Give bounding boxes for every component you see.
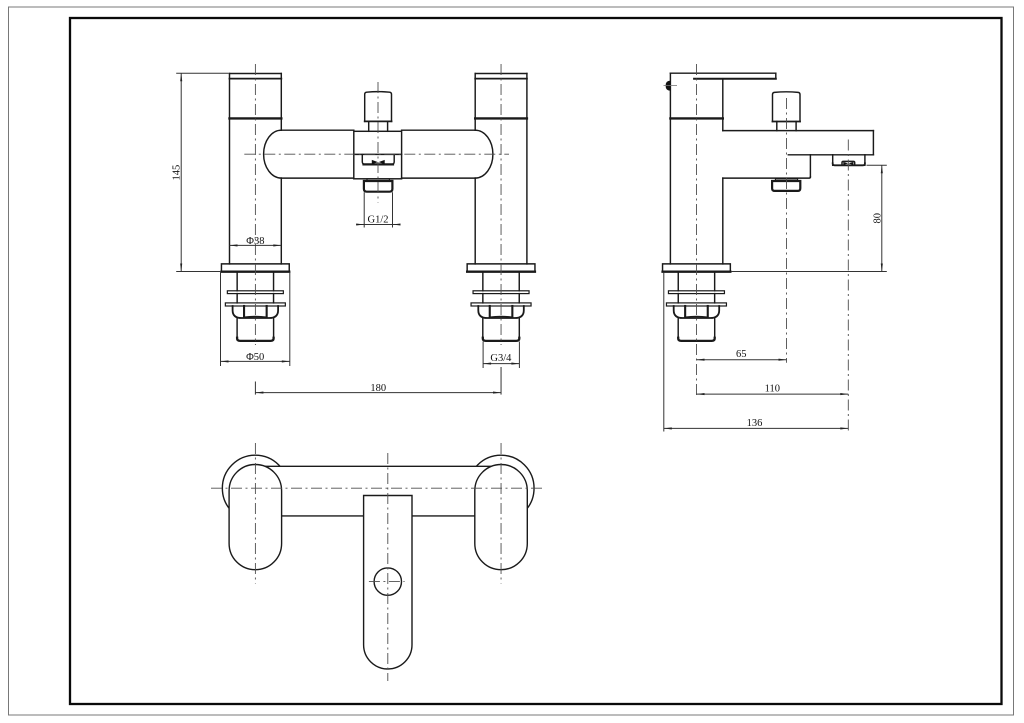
svg-text:145: 145 <box>171 165 182 181</box>
svg-text:Φ38: Φ38 <box>246 236 264 247</box>
svg-text:180: 180 <box>370 383 386 394</box>
svg-text:136: 136 <box>747 418 763 429</box>
svg-text:G1/2: G1/2 <box>368 214 389 225</box>
svg-text:65: 65 <box>736 349 747 360</box>
svg-text:G3/4: G3/4 <box>490 353 512 364</box>
svg-text:Φ50: Φ50 <box>246 352 264 363</box>
svg-text:80: 80 <box>872 213 883 224</box>
svg-text:110: 110 <box>765 384 780 395</box>
